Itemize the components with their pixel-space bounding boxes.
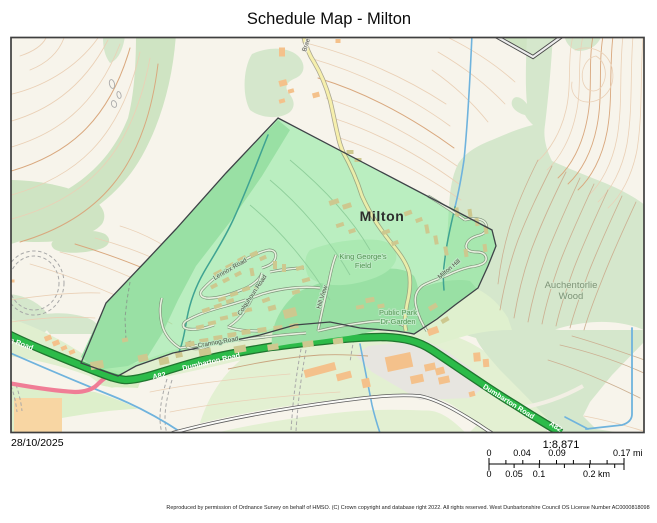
svg-text:0.2 km: 0.2 km xyxy=(583,469,610,479)
svg-text:28/10/2025: 28/10/2025 xyxy=(11,437,64,449)
svg-text:0: 0 xyxy=(486,469,491,479)
svg-text:Auchentorlie: Auchentorlie xyxy=(545,280,598,291)
svg-text:0.04: 0.04 xyxy=(513,448,531,458)
svg-text:0: 0 xyxy=(486,448,491,458)
svg-text:Field: Field xyxy=(355,261,371,270)
svg-text:Wood: Wood xyxy=(559,291,584,302)
svg-text:0.1: 0.1 xyxy=(533,469,546,479)
svg-text:Dr Garden: Dr Garden xyxy=(380,317,415,326)
svg-text:Public Park: Public Park xyxy=(379,308,417,317)
svg-text:0.09: 0.09 xyxy=(548,448,566,458)
svg-text:King George's: King George's xyxy=(339,252,387,261)
svg-text:Milton: Milton xyxy=(360,208,405,224)
svg-text:Schedule Map - Milton: Schedule Map - Milton xyxy=(247,10,411,28)
svg-text:0.17 mi: 0.17 mi xyxy=(613,448,643,458)
svg-text:0.05: 0.05 xyxy=(505,469,523,479)
svg-text:Reproduced by permission of Or: Reproduced by permission of Ordnance Sur… xyxy=(166,505,649,511)
